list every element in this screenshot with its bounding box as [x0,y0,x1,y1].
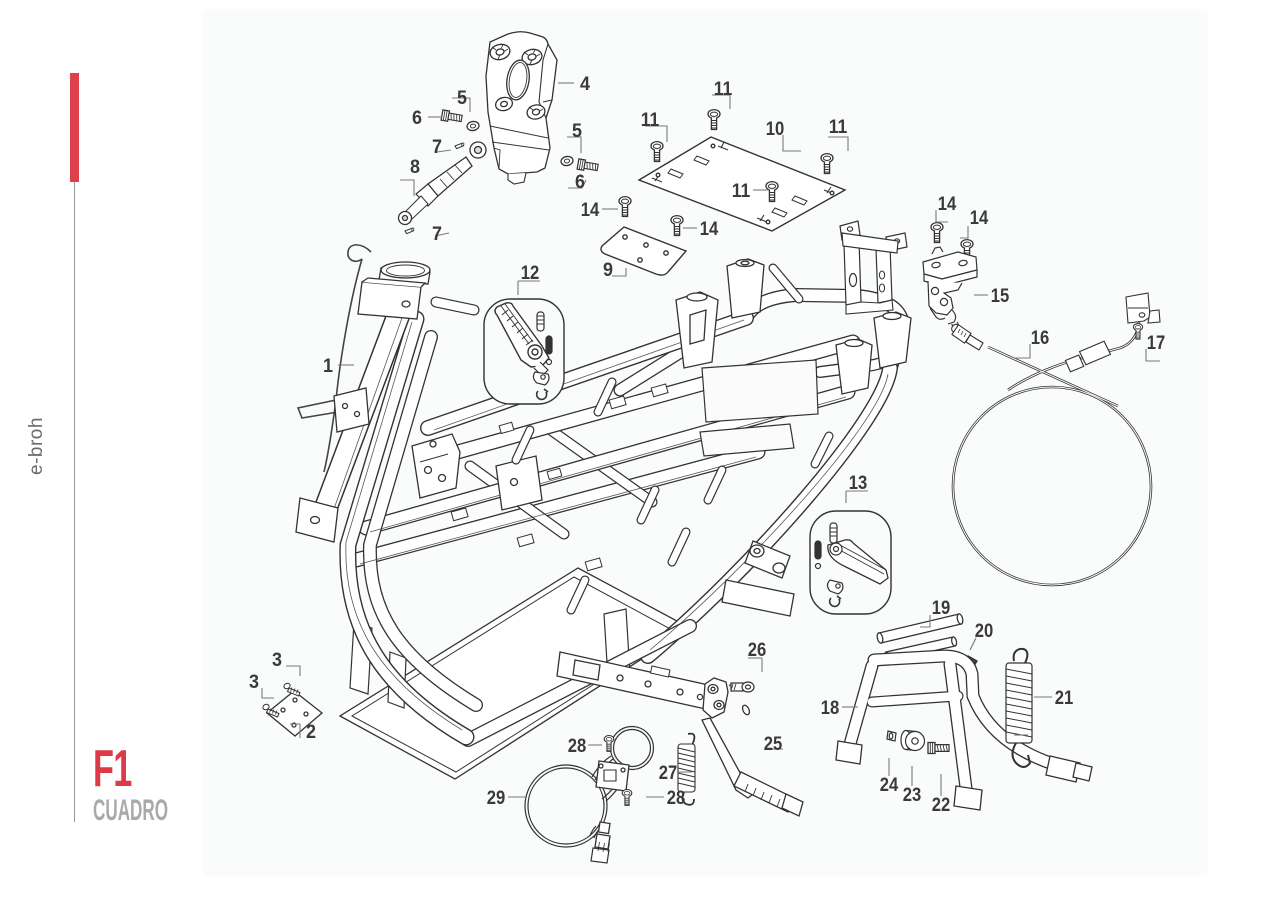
svg-text:15: 15 [991,286,1010,307]
svg-text:17: 17 [1147,333,1166,354]
svg-text:16: 16 [1031,328,1050,349]
svg-text:11: 11 [641,110,660,131]
svg-text:14: 14 [700,219,719,240]
svg-text:14: 14 [970,208,989,229]
svg-text:18: 18 [821,698,840,719]
svg-text:10: 10 [766,119,785,140]
svg-text:6: 6 [412,108,422,129]
svg-text:11: 11 [714,79,733,100]
svg-text:20: 20 [975,621,994,642]
svg-text:26: 26 [748,640,767,661]
svg-text:28: 28 [568,736,587,757]
svg-text:3: 3 [249,672,259,693]
svg-text:13: 13 [849,473,868,494]
svg-text:24: 24 [880,775,899,796]
svg-text:27: 27 [659,763,678,784]
svg-text:5: 5 [572,121,582,142]
svg-text:4: 4 [580,74,590,95]
svg-text:28: 28 [667,788,686,809]
svg-text:8: 8 [410,157,420,178]
svg-text:12: 12 [521,263,540,284]
svg-text:3: 3 [272,650,282,671]
svg-text:14: 14 [938,194,957,215]
svg-text:29: 29 [487,788,506,809]
svg-text:7: 7 [432,137,442,158]
svg-text:22: 22 [932,795,951,816]
svg-text:9: 9 [603,260,613,281]
svg-text:1: 1 [323,356,333,377]
svg-text:5: 5 [457,88,467,109]
svg-text:6: 6 [575,172,585,193]
svg-text:2: 2 [306,722,316,743]
svg-text:14: 14 [581,200,600,221]
svg-text:19: 19 [932,598,951,619]
svg-text:11: 11 [732,181,751,202]
svg-text:23: 23 [903,785,922,806]
svg-text:11: 11 [829,117,848,138]
svg-text:7: 7 [432,224,442,245]
svg-text:25: 25 [764,734,783,755]
svg-text:21: 21 [1055,688,1074,709]
